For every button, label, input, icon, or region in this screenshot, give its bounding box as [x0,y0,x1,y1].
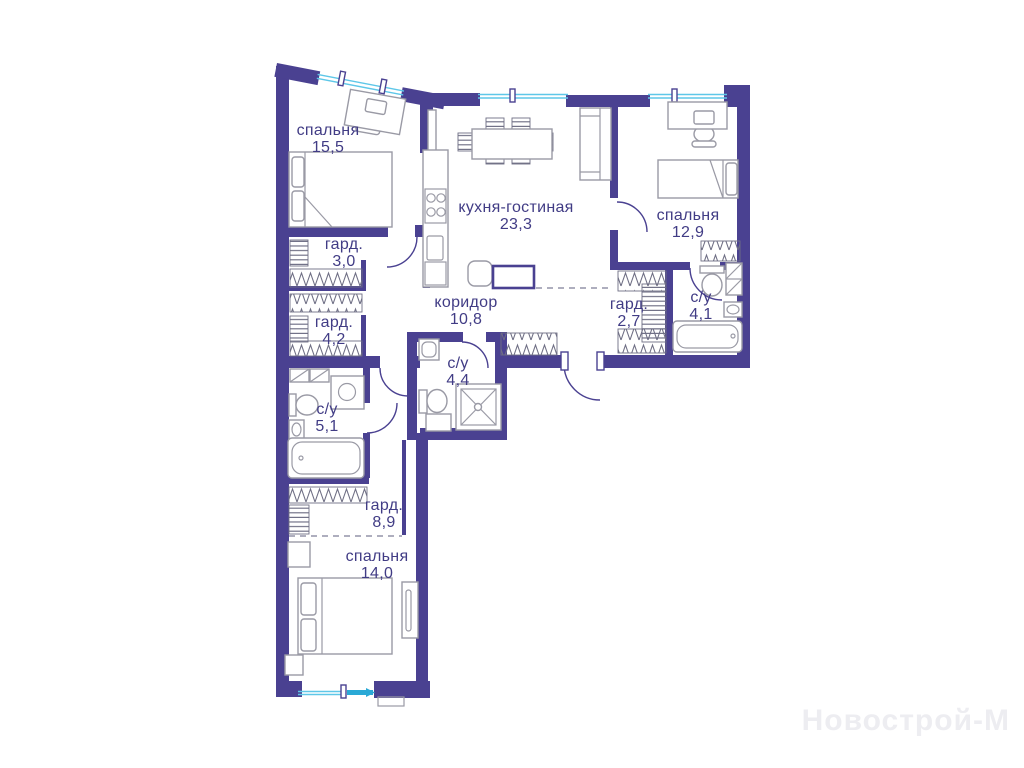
shower-cabin [456,384,501,430]
toilet [419,390,451,432]
bar-stool [468,261,492,286]
room-name: гард. [365,497,403,514]
room-name: гард. [610,296,648,313]
nightstand [285,655,303,675]
window-kitchen [478,89,568,102]
window-bedroom-2 [648,89,727,102]
room-label-wardrobe-4: гард. 8,9 [365,497,403,531]
shelf-unit [290,240,308,266]
room-name: спальня [346,548,409,565]
hanging-rail [290,294,362,312]
bathtub [288,438,364,478]
room-label-bathroom-1: с/у 4,1 [689,289,712,323]
wardrobe-mirror [402,582,418,638]
pillow [292,191,304,221]
bedroom-2-furniture [658,102,738,198]
pillow [301,619,316,651]
door-bedroom-2 [617,202,647,232]
room-area: 23,3 [458,216,573,233]
room-label-bathroom-3: с/у 5,1 [315,401,338,435]
room-name: коридор [434,294,497,311]
bed [658,160,738,198]
room-name: спальня [657,207,720,224]
room-area: 4,4 [446,372,469,389]
water-heater [726,263,742,295]
kitchen-island [493,266,534,288]
built-in-wardrobe [701,241,740,261]
room-area: 8,9 [365,514,403,531]
floorplan-drawing [0,0,1024,768]
room-name: с/у [446,355,469,372]
pillow [726,163,737,195]
toilet [289,394,318,416]
sofa [580,108,611,180]
room-area: 12,9 [657,224,720,241]
shelf-unit [289,505,309,534]
door-hall [380,368,408,396]
bed [298,578,392,654]
room-area: 4,1 [689,306,712,323]
cabinet [426,414,451,431]
room-label-wardrobe-1: гард. 3,0 [325,236,363,270]
wall-cabinets [290,369,329,382]
floorplan-page: спальня 15,5 кухня-гостиная 23,3 спальня… [0,0,1024,768]
room-label-bedroom-3: спальня 14,0 [346,548,409,582]
room-name: гард. [315,314,353,331]
room-name: с/у [315,401,338,418]
room-name: спальня [297,122,360,139]
room-name: гард. [325,236,363,253]
monitor [365,98,387,114]
room-area: 10,8 [434,311,497,328]
room-area: 4,2 [315,331,353,348]
pillow [292,157,304,187]
room-area: 5,1 [315,418,338,435]
room-area: 2,7 [610,313,648,330]
room-name: кухня-гостиная [458,199,573,216]
sink [419,339,439,360]
hanging-rail [289,487,367,503]
hanging-rail [290,269,362,287]
balcony-ledge [378,697,404,706]
room-label-wardrobe-3: гард. 2,7 [610,296,648,330]
room-label-bathroom-2: с/у 4,4 [446,355,469,389]
developer-watermark: Новострой-М [802,704,1010,738]
sink [289,420,304,439]
sink [724,302,742,317]
coat-rack [501,333,557,355]
monitor [694,111,714,124]
bedroom-1-furniture [289,89,406,227]
dining-chair [458,133,473,151]
room-label-bedroom-2: спальня 12,9 [657,207,720,241]
bed [289,152,392,227]
dining-table [472,129,552,159]
pillow [301,583,316,615]
room-label-bedroom-1: спальня 15,5 [297,122,360,156]
room-area: 15,5 [297,139,360,156]
bathtub [673,321,742,352]
shelf-unit [290,316,308,342]
desk [668,102,727,147]
hanging-rail [618,329,666,353]
room-area: 14,0 [346,565,409,582]
room-name: с/у [689,289,712,306]
room-area: 3,0 [325,253,363,270]
door-entrance [564,364,600,400]
door-bathroom-3 [367,403,397,433]
dining-set [458,118,553,164]
kitchen-living-furniture [423,108,611,288]
room-label-wardrobe-2: гард. 4,2 [315,314,353,348]
kitchen-counter [423,150,448,287]
room-label-corridor: коридор 10,8 [434,294,497,328]
tv [428,110,436,152]
door-bedroom-1 [387,237,417,267]
room-label-kitchen-living: кухня-гостиная 23,3 [458,199,573,233]
nightstand [288,542,310,567]
